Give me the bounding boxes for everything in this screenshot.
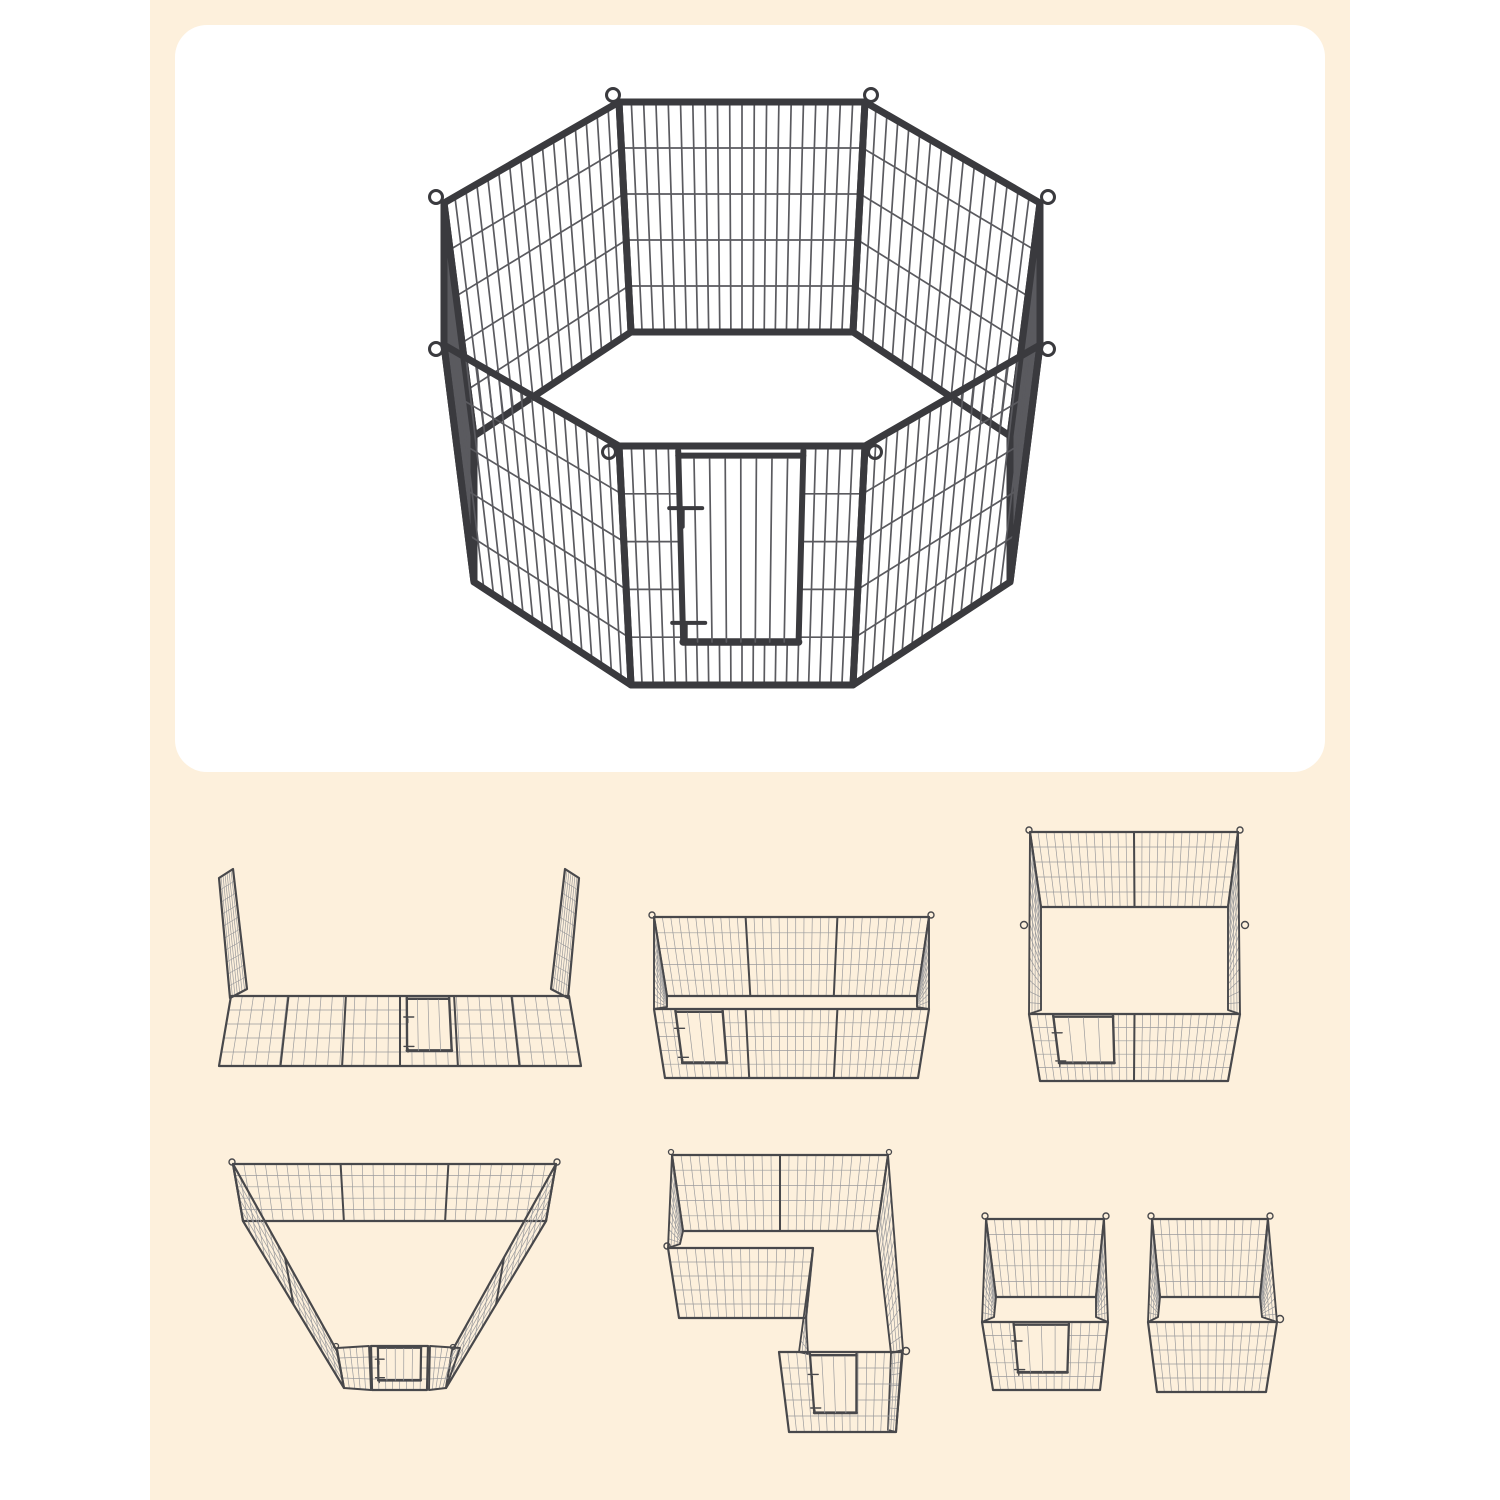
product-image: [0, 0, 1500, 1500]
hero-card: [175, 25, 1325, 772]
product-image-canvas: [0, 0, 1500, 1500]
